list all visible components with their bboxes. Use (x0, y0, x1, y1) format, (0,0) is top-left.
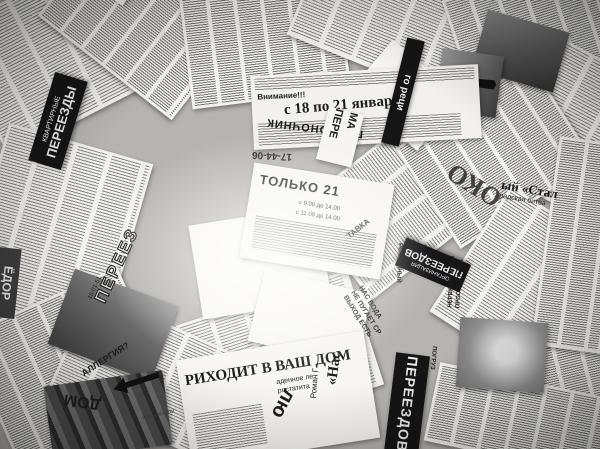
pogruz-text: ПОГРУЗ (429, 346, 437, 370)
yodor-text: ЁДОР (0, 265, 16, 300)
ad-small-print (192, 404, 267, 449)
pereezdov-bottom-label: ПЕРЕЕЗДОВ (384, 352, 430, 449)
january-ad-clipping: Внимание!!! с 18 по 21 января (250, 64, 482, 150)
phone-upside-text: 17-44-06 (252, 149, 293, 162)
pereezdov-bottom-text: ПЕРЕЕЗДОВ (394, 355, 420, 449)
attention-text: Внимание!!! (257, 90, 305, 101)
prospal-clipping: ПРОСПАЛ?! ЗУД НЕРВНОЕ ПЕРЕН (445, 248, 466, 309)
teapot-photo (456, 317, 549, 393)
newspaper-collage: сква КВАРТИРНЫЕ ПЕРЕЕЗДЫ ЁДОР Внимание!!… (0, 0, 600, 449)
prospal-text: ПРОСПАЛ?! ЗУД (455, 248, 464, 308)
